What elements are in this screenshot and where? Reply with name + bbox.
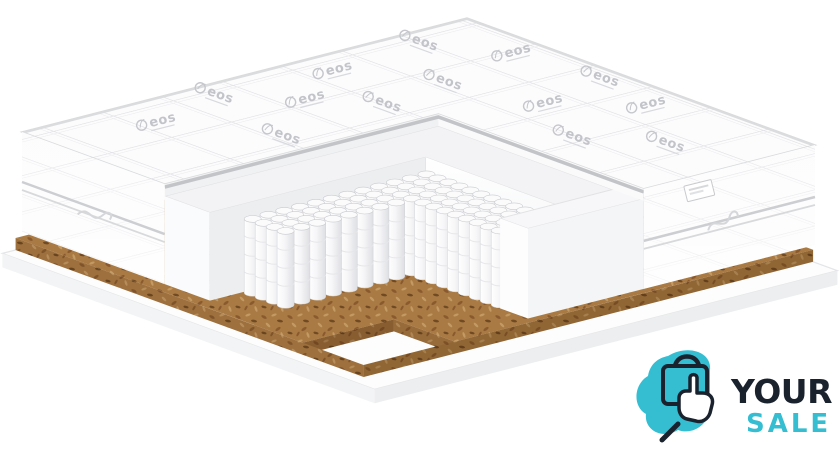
spring xyxy=(372,203,389,284)
spring xyxy=(388,199,405,280)
spring xyxy=(293,223,310,304)
spring xyxy=(356,207,373,288)
scene: eos eos eos eos eos eos eos eos xyxy=(0,0,840,459)
spring xyxy=(309,219,326,300)
spring xyxy=(325,215,342,296)
logo-text-your: YOUR xyxy=(730,372,832,411)
spring xyxy=(277,228,294,309)
logo-text-sale: SALE xyxy=(746,409,831,439)
mattress-cutaway-render: eos eos eos eos eos eos eos eos xyxy=(0,0,840,459)
spring xyxy=(340,211,357,292)
